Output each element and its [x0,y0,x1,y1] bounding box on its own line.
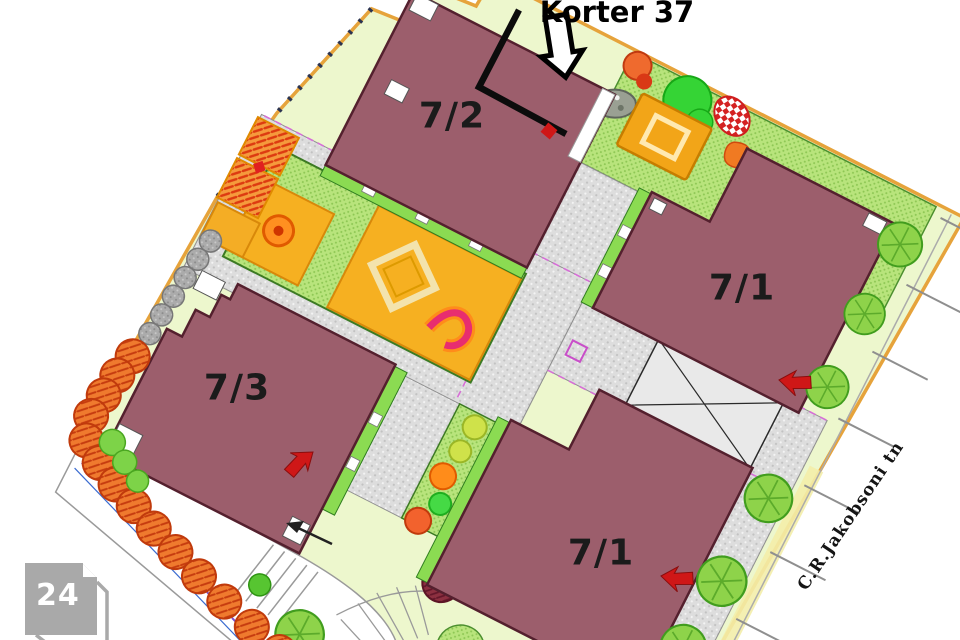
building-label-7-1-bottom: 7/1 [568,533,634,574]
building-label-7-1-right: 7/1 [709,268,775,309]
apartment-label: Korter 37 [540,0,694,29]
watermark-text: 24 [36,578,80,613]
building-label-7-3: 7/3 [204,368,270,409]
building-label-7-2: 7/2 [419,96,485,137]
site-plan: Korter 37 7/2 7/1 7/3 7/1 C.R.Jakobsoni … [0,0,960,640]
